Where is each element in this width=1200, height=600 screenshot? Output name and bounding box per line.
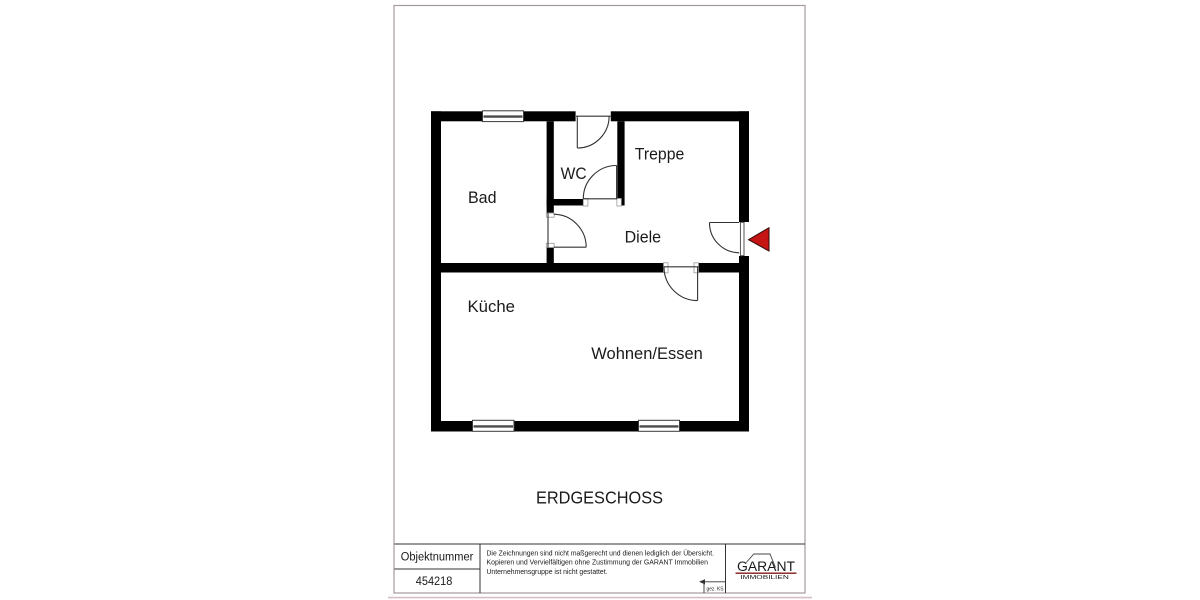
svg-text:Diele: Diele bbox=[625, 228, 662, 246]
svg-text:IMMOBILIEN: IMMOBILIEN bbox=[740, 575, 789, 581]
svg-text:Unternehmensgruppe ist nicht g: Unternehmensgruppe ist nicht gestattet. bbox=[487, 567, 608, 576]
svg-text:Bad: Bad bbox=[468, 189, 497, 207]
svg-text:Wohnen/Essen: Wohnen/Essen bbox=[591, 345, 703, 363]
svg-text:Treppe: Treppe bbox=[635, 146, 685, 164]
svg-text:WC: WC bbox=[561, 165, 587, 183]
svg-text:gez. KS: gez. KS bbox=[707, 587, 724, 593]
svg-text:Küche: Küche bbox=[468, 298, 516, 316]
svg-text:454218: 454218 bbox=[416, 576, 453, 588]
svg-text:Die Zeichnungen sind nicht maß: Die Zeichnungen sind nicht maßgerecht un… bbox=[487, 549, 715, 558]
svg-text:Kopieren und Vervielfältigen o: Kopieren und Vervielfältigen ohne Zustim… bbox=[487, 558, 709, 567]
svg-text:Objektnummer: Objektnummer bbox=[401, 551, 474, 563]
svg-text:GARANT: GARANT bbox=[737, 559, 795, 574]
svg-text:ERDGESCHOSS: ERDGESCHOSS bbox=[536, 488, 663, 508]
